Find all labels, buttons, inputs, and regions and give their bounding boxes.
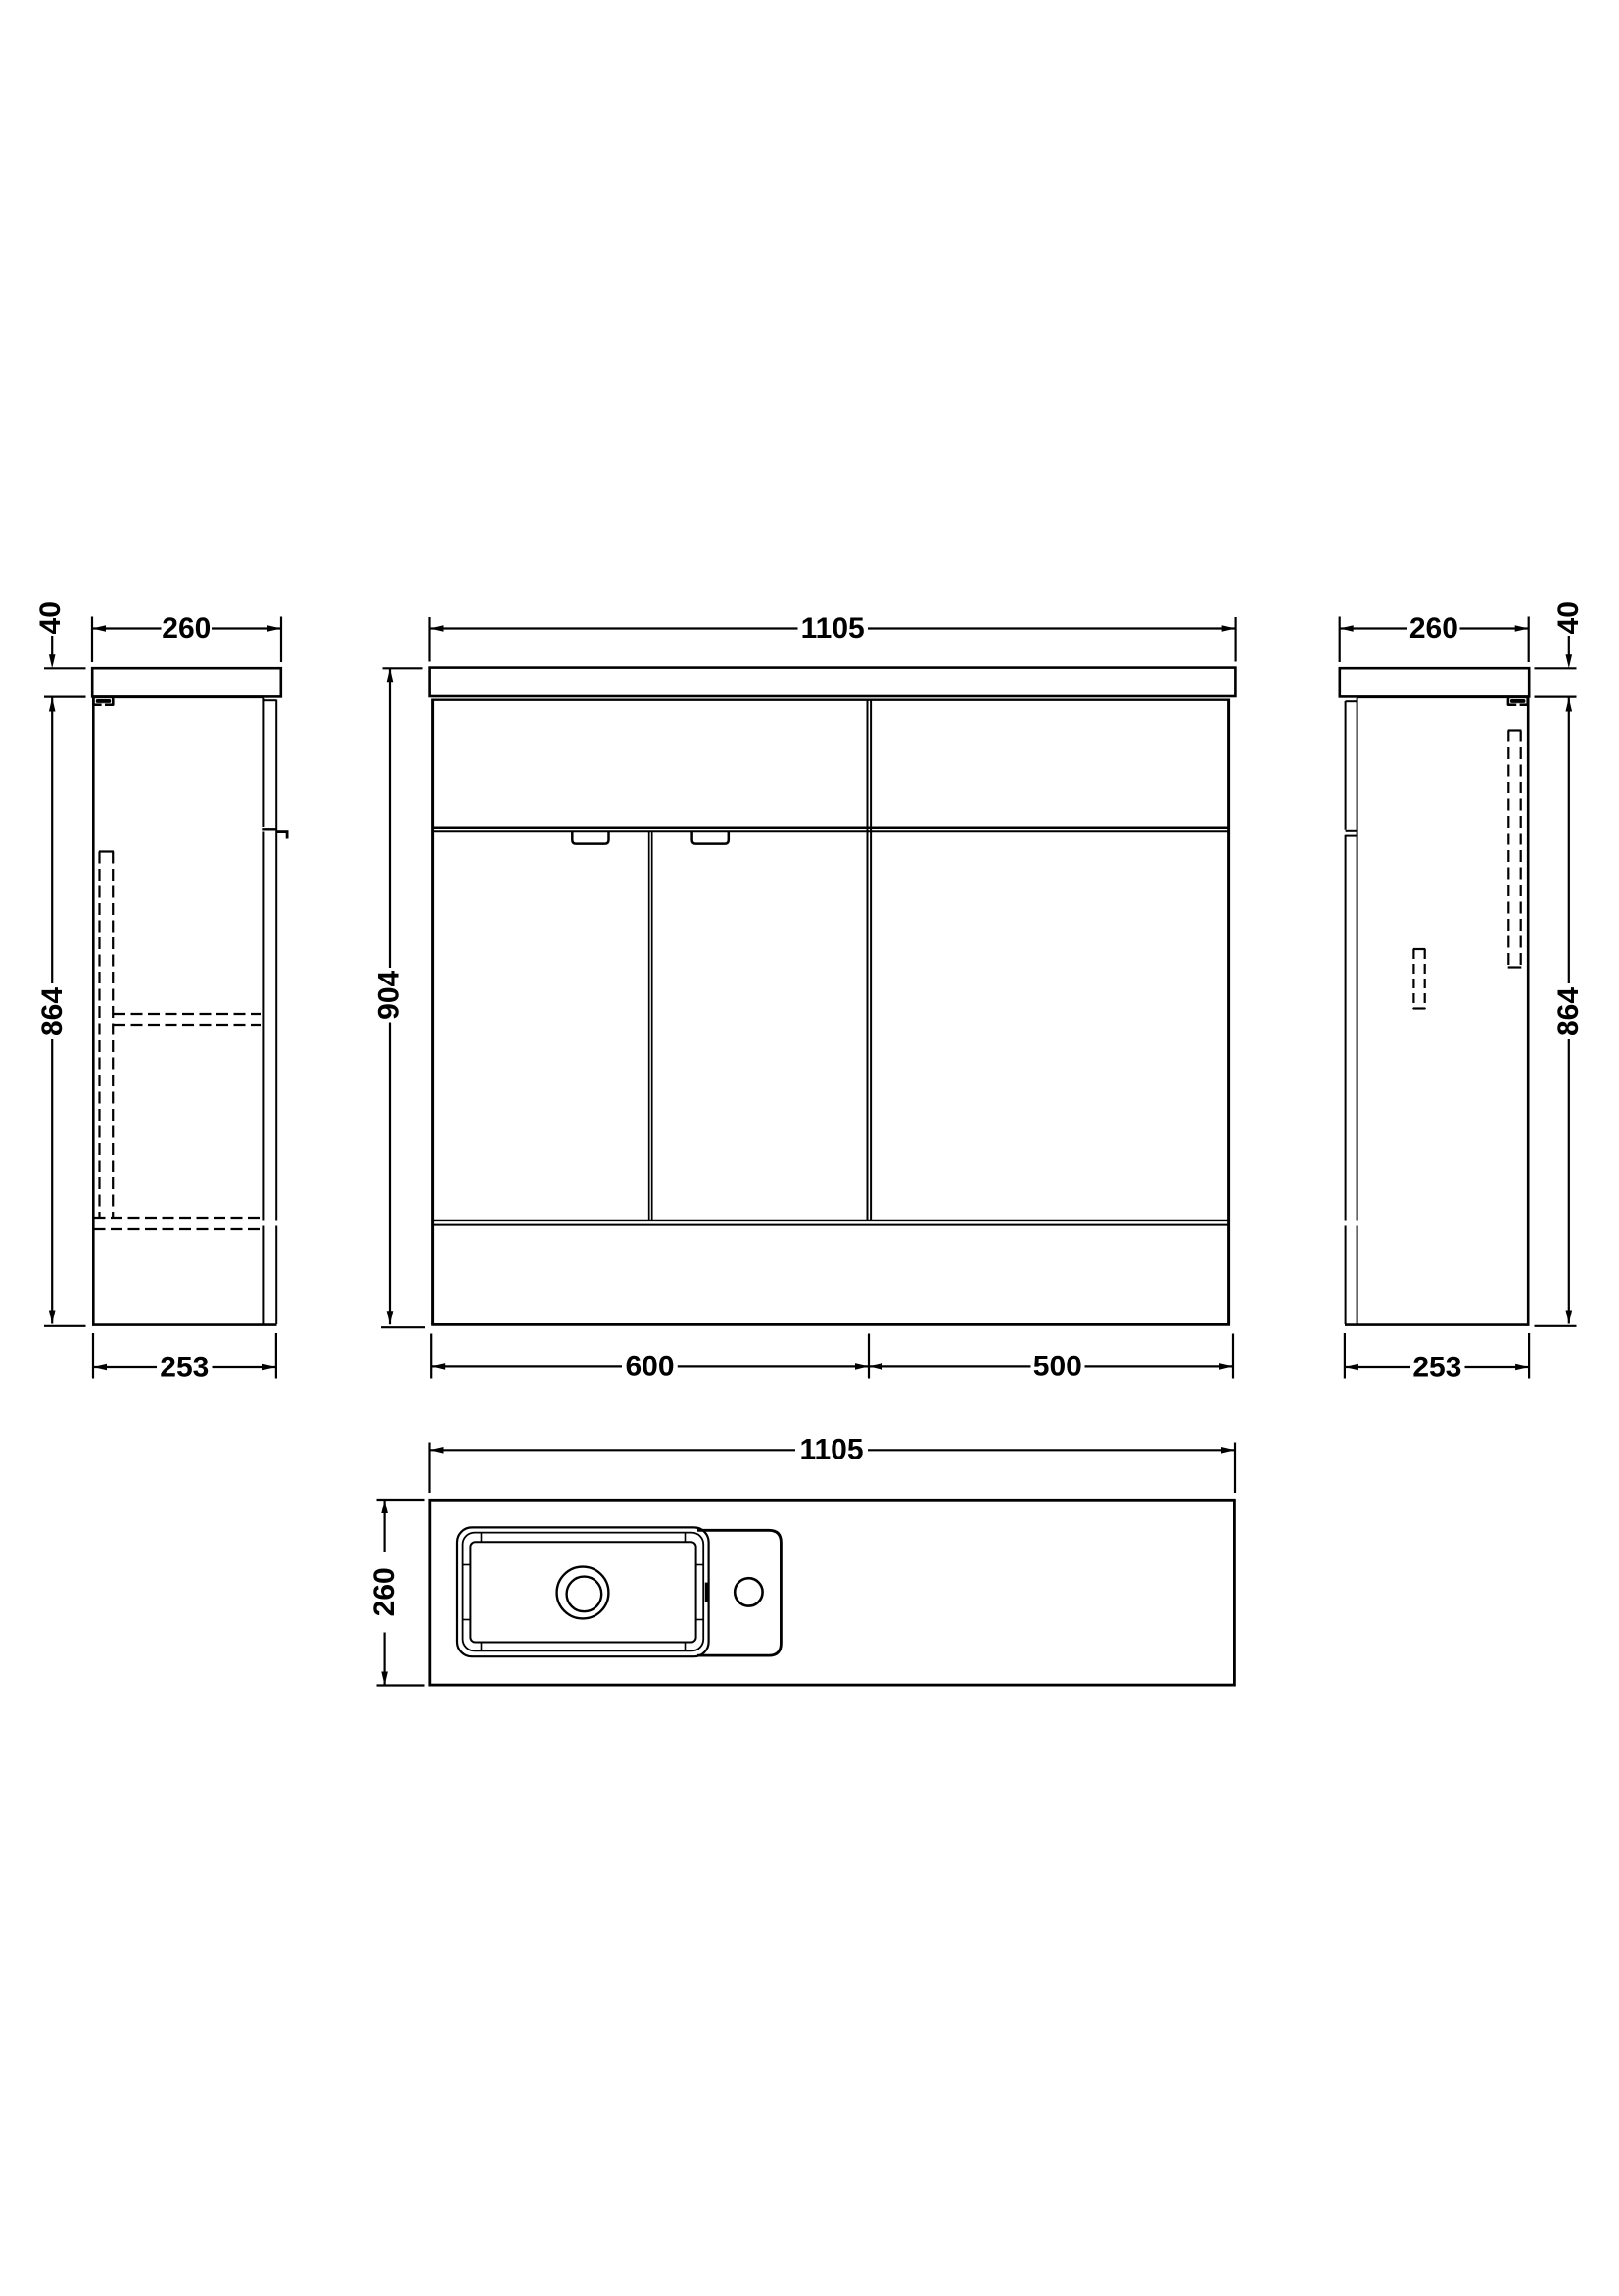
svg-text:904: 904 — [372, 970, 405, 1019]
svg-text:1105: 1105 — [799, 1434, 863, 1466]
svg-text:40: 40 — [1552, 601, 1585, 634]
svg-text:260: 260 — [162, 612, 211, 645]
svg-text:864: 864 — [36, 987, 69, 1036]
svg-text:253: 253 — [1412, 1351, 1461, 1383]
svg-text:40: 40 — [34, 601, 67, 634]
svg-text:600: 600 — [625, 1351, 674, 1383]
svg-text:1105: 1105 — [801, 612, 865, 645]
svg-text:500: 500 — [1033, 1351, 1082, 1383]
svg-text:260: 260 — [1409, 612, 1458, 645]
svg-text:253: 253 — [160, 1351, 209, 1383]
svg-text:260: 260 — [368, 1567, 401, 1616]
svg-text:864: 864 — [1552, 987, 1585, 1036]
